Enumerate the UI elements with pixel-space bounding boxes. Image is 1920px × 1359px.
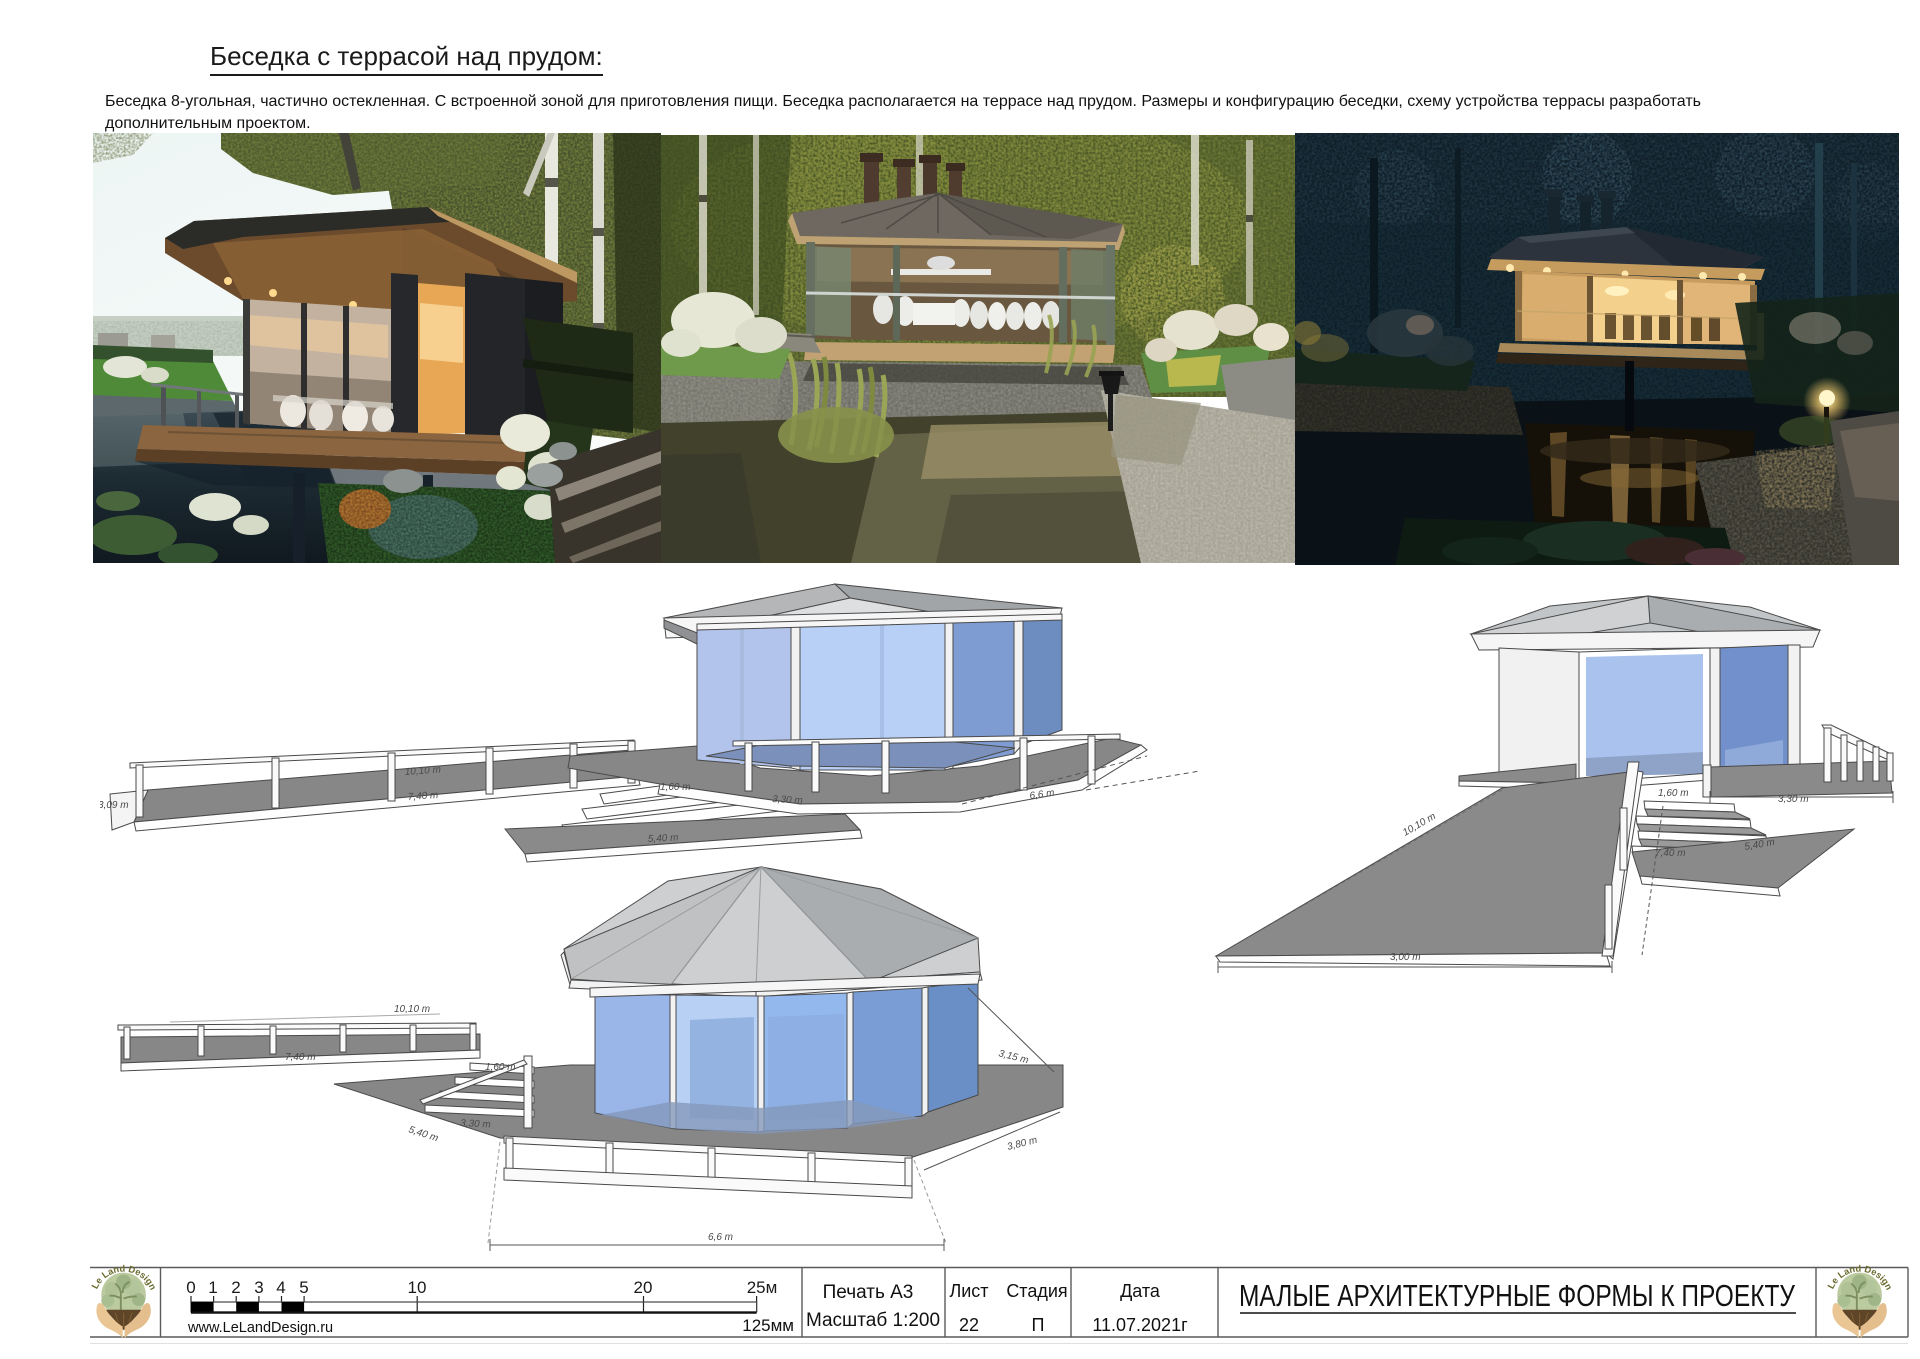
svg-text:Стадия: Стадия	[1006, 1281, 1067, 1301]
svg-text:20: 20	[634, 1278, 653, 1297]
svg-text:0: 0	[186, 1278, 195, 1297]
svg-text:1: 1	[208, 1278, 217, 1297]
svg-text:1,60 m: 1,60 m	[485, 1062, 516, 1073]
svg-text:22: 22	[959, 1315, 979, 1335]
svg-text:2: 2	[231, 1278, 240, 1297]
svg-text:3,15 m: 3,15 m	[997, 1048, 1029, 1066]
svg-text:3,30 m: 3,30 m	[1778, 794, 1809, 805]
svg-text:4: 4	[276, 1278, 285, 1297]
svg-text:3,09 m: 3,09 m	[100, 800, 129, 811]
svg-text:1,60 m: 1,60 m	[660, 782, 691, 793]
svg-text:Масштаб 1:200: Масштаб 1:200	[806, 1310, 940, 1331]
svg-text:6,6 m: 6,6 m	[708, 1232, 733, 1243]
svg-text:10,10 m: 10,10 m	[394, 1004, 430, 1015]
svg-text:Дата: Дата	[1120, 1281, 1161, 1301]
svg-text:7,40 m: 7,40 m	[1655, 848, 1686, 859]
svg-text:Печать А3: Печать А3	[823, 1282, 914, 1303]
svg-text:3,30 m: 3,30 m	[772, 794, 803, 807]
svg-text:5,40 m: 5,40 m	[648, 832, 679, 845]
svg-text:5: 5	[299, 1278, 308, 1297]
svg-text:1,60 m: 1,60 m	[1658, 788, 1689, 799]
svg-text:25м: 25м	[747, 1278, 778, 1297]
svg-text:МАЛЫЕ АРХИТЕКТУРНЫЕ ФОРМЫ К ПР: МАЛЫЕ АРХИТЕКТУРНЫЕ ФОРМЫ К ПРОЕКТУ	[1239, 1278, 1795, 1313]
svg-text:6,6 m: 6,6 m	[1029, 788, 1055, 802]
svg-text:7,40 m: 7,40 m	[407, 790, 438, 803]
svg-text:10: 10	[408, 1278, 427, 1297]
svg-text:3,30 m: 3,30 m	[460, 1118, 491, 1131]
svg-text:125мм: 125мм	[742, 1316, 794, 1335]
svg-text:3: 3	[254, 1278, 263, 1297]
svg-text:5,40 m: 5,40 m	[407, 1124, 439, 1144]
svg-text:3,00 m: 3,00 m	[1390, 952, 1421, 963]
svg-text:7,40 m: 7,40 m	[285, 1052, 316, 1063]
svg-text:www.LeLandDesign.ru: www.LeLandDesign.ru	[187, 1320, 333, 1336]
svg-text:3,80 m: 3,80 m	[1006, 1135, 1038, 1153]
svg-text:П: П	[1032, 1315, 1045, 1335]
svg-text:11.07.2021г: 11.07.2021г	[1092, 1315, 1188, 1335]
svg-text:Лист: Лист	[949, 1281, 988, 1301]
